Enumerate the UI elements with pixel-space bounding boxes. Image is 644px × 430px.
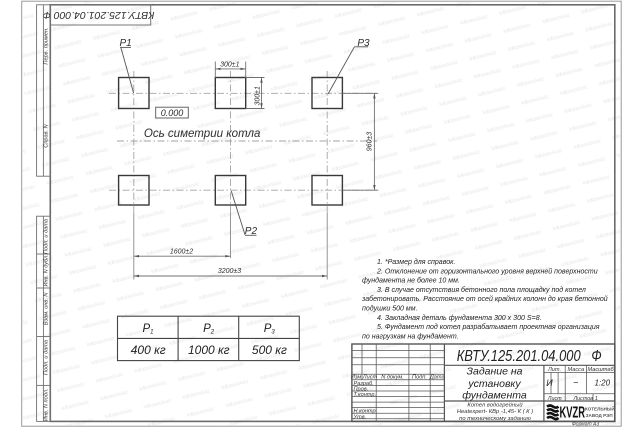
svg-text:3200±3: 3200±3 xyxy=(218,268,241,275)
svg-text:Справ. N: Справ. N xyxy=(44,123,50,147)
svg-text:Перв. примен.: Перв. примен. xyxy=(44,27,50,64)
svg-text:установку: установку xyxy=(467,378,521,390)
svg-text:300±1: 300±1 xyxy=(254,86,261,106)
svg-text:Лист: Лист xyxy=(547,396,562,402)
svg-text:1: 1 xyxy=(595,396,598,402)
svg-text:забетонировать. Расстояние от: забетонировать. Расстояние от осей крайн… xyxy=(361,295,608,303)
svg-text:Формат А3: Формат А3 xyxy=(572,422,600,428)
svg-text:Масса: Масса xyxy=(568,367,585,373)
svg-text:КВТУ.125.201.04.000 Ф: КВТУ.125.201.04.000 Ф xyxy=(43,9,155,21)
svg-text:Р3: Р3 xyxy=(357,38,370,49)
svg-text:Утв.: Утв. xyxy=(353,414,367,420)
svg-text:2. Отклонение от горизонтально: 2. Отклонение от горизонтального уровня … xyxy=(376,267,598,275)
svg-text:N докум.: N докум. xyxy=(381,375,404,381)
svg-text:4. Закладная деталь фундамента: 4. Закладная деталь фундамента 300 х 300… xyxy=(377,314,542,322)
svg-text:300±1: 300±1 xyxy=(220,62,240,69)
svg-text:Дата: Дата xyxy=(429,375,445,381)
svg-text:1:20: 1:20 xyxy=(595,379,611,388)
svg-text:И: И xyxy=(546,378,553,388)
svg-text:КВТУ.125.201.04.000 Ф: КВТУ.125.201.04.000 Ф xyxy=(457,348,602,365)
svg-text:по нагрузкам на фундамент.: по нагрузкам на фундамент. xyxy=(362,332,459,340)
svg-text:Инв. N дубл.: Инв. N дубл. xyxy=(44,254,50,286)
svg-text:фундамента не более 10 мм.: фундамента не более 10 мм. xyxy=(362,277,460,285)
svg-text:Лит.: Лит. xyxy=(547,367,561,373)
svg-text:1000 кг: 1000 кг xyxy=(188,343,230,357)
svg-text:Подп.: Подп. xyxy=(412,375,427,381)
svg-text:Масштаб: Масштаб xyxy=(588,367,615,373)
svg-text:КОТЕЛЬНЫЙ: КОТЕЛЬНЫЙ xyxy=(585,405,615,412)
svg-text:по техническому заданию: по техническому заданию xyxy=(459,416,531,422)
svg-text:1600±2: 1600±2 xyxy=(170,248,193,255)
svg-text:KVZR: KVZR xyxy=(560,404,586,421)
svg-text:фундамента: фундамента xyxy=(462,390,527,402)
svg-text:Ось симетрии котла: Ось симетрии котла xyxy=(144,126,261,140)
svg-text:Heatexpert- КВр -1,45- К ( К ): Heatexpert- КВр -1,45- К ( К ) xyxy=(457,409,533,415)
svg-text:Инв. N подл.: Инв. N подл. xyxy=(44,388,50,421)
svg-text:3. В случае отсутствия бетонно: 3. В случае отсутствия бетонного пола пл… xyxy=(377,286,586,294)
svg-text:500 кг: 500 кг xyxy=(252,343,287,357)
svg-text:Задание на: Задание на xyxy=(467,366,523,378)
svg-text:5. Фундамент под котел разраба: 5. Фундамент под котел разрабатывает про… xyxy=(377,323,600,331)
svg-text:Листов: Листов xyxy=(572,396,593,402)
svg-text:960±3: 960±3 xyxy=(366,132,373,152)
svg-text:1. *Размер для справок.: 1. *Размер для справок. xyxy=(377,258,455,266)
svg-text:ЗАВОД РЭП: ЗАВОД РЭП xyxy=(586,413,613,418)
svg-text:Подп. и дата: Подп. и дата xyxy=(44,340,50,375)
svg-text:0.000: 0.000 xyxy=(161,108,184,118)
svg-text:Изм.Лист: Изм.Лист xyxy=(351,375,378,381)
svg-text:Т.контр.: Т.контр. xyxy=(354,392,377,398)
svg-text:Котел водогрейный: Котел водогрейный xyxy=(467,401,523,408)
svg-text:Подп. и дата: Подп. и дата xyxy=(44,219,50,254)
svg-text:–: – xyxy=(573,378,579,387)
svg-text:подушки 500 мм.: подушки 500 мм. xyxy=(362,305,418,313)
svg-text:Взам. инв. N: Взам. инв. N xyxy=(44,292,50,326)
svg-text:400 кг: 400 кг xyxy=(131,343,166,357)
